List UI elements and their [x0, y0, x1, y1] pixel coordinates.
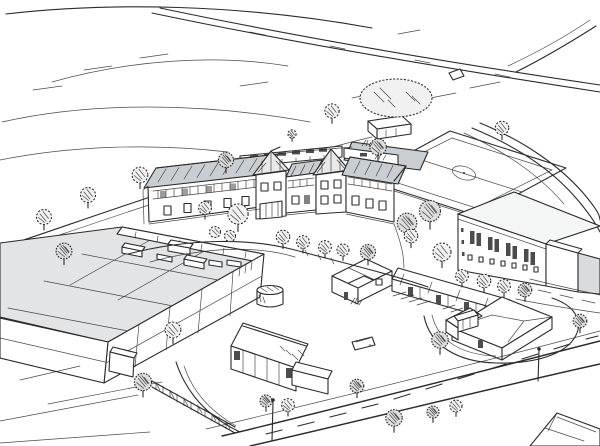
building-annex — [292, 362, 332, 394]
classroom-building-west — [332, 259, 392, 304]
sports-hall — [0, 227, 264, 383]
storage-tank — [257, 286, 283, 308]
hall-entrance-box — [109, 347, 137, 377]
access-path — [176, 362, 240, 432]
pitch-pavilion — [368, 116, 411, 139]
sketch-page — [0, 0, 600, 446]
parked-car — [352, 337, 375, 350]
bottom-right-houses — [530, 413, 600, 446]
field-contours — [0, 7, 500, 160]
roadside-sign — [449, 69, 464, 80]
foreground-building — [231, 323, 332, 394]
campus-sketch — [0, 0, 600, 446]
street-lamps — [271, 347, 541, 441]
large-bush — [360, 79, 432, 117]
